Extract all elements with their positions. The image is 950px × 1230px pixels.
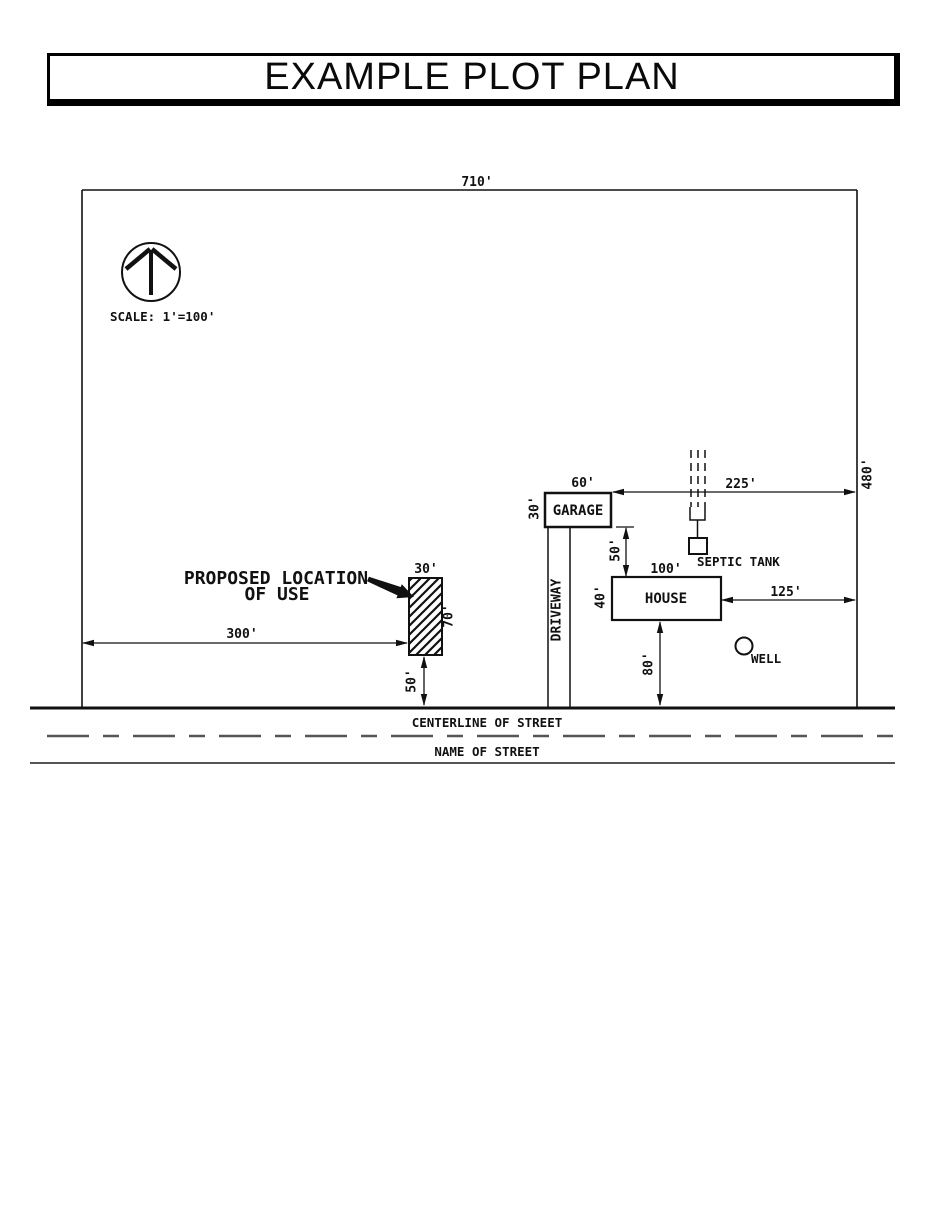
house-label: HOUSE xyxy=(645,591,687,607)
proposed-use-depth-label: 70' xyxy=(442,604,457,627)
driveway-label: DRIVEWAY xyxy=(550,579,565,642)
proposed-use-width-label: 30' xyxy=(414,562,437,577)
garage-width-label: 60' xyxy=(571,476,594,491)
house-depth-label: 40' xyxy=(594,585,609,608)
dim-garage-to-house-label: 50' xyxy=(609,538,624,561)
septic-tank-label: SEPTIC TANK xyxy=(697,554,780,569)
scale-label: SCALE: 1'=100' xyxy=(110,309,215,324)
garage-label: GARAGE xyxy=(553,503,604,519)
well-icon xyxy=(736,638,753,655)
lot-depth-dim-label: 480' xyxy=(861,458,876,489)
plot-plan-drawing: 710' 480' SCALE: 1'=100' GARAGE 60' 30' … xyxy=(0,0,950,1230)
dim-garage-to-rear-label: 225' xyxy=(725,477,756,492)
dim-use-to-side-label: 300' xyxy=(226,627,257,642)
garage-depth-label: 30' xyxy=(528,496,543,519)
lot-width-dim-label: 710' xyxy=(461,175,492,190)
dim-house-to-street-label: 80' xyxy=(642,652,657,675)
lot-boundary xyxy=(82,190,857,708)
septic-tank-box xyxy=(689,538,707,554)
dim-use-to-street-label: 50' xyxy=(405,669,420,692)
proposed-use-label-line2: OF USE xyxy=(244,584,309,605)
street-centerline-label: CENTERLINE OF STREET xyxy=(412,715,563,730)
dim-house-to-side-label: 125' xyxy=(770,585,801,600)
well-label: WELL xyxy=(751,651,782,666)
leader-arrow-icon xyxy=(367,577,414,599)
proposed-use-area xyxy=(409,578,442,655)
house-width-label: 100' xyxy=(650,562,681,577)
north-arrow-icon xyxy=(122,243,180,301)
septic-leach-field-icon xyxy=(690,450,705,538)
street-name-label: NAME OF STREET xyxy=(434,744,539,759)
plot-plan-page: EXAMPLE PLOT PLAN 710' 480' SCALE: 1'=10… xyxy=(0,0,950,1230)
